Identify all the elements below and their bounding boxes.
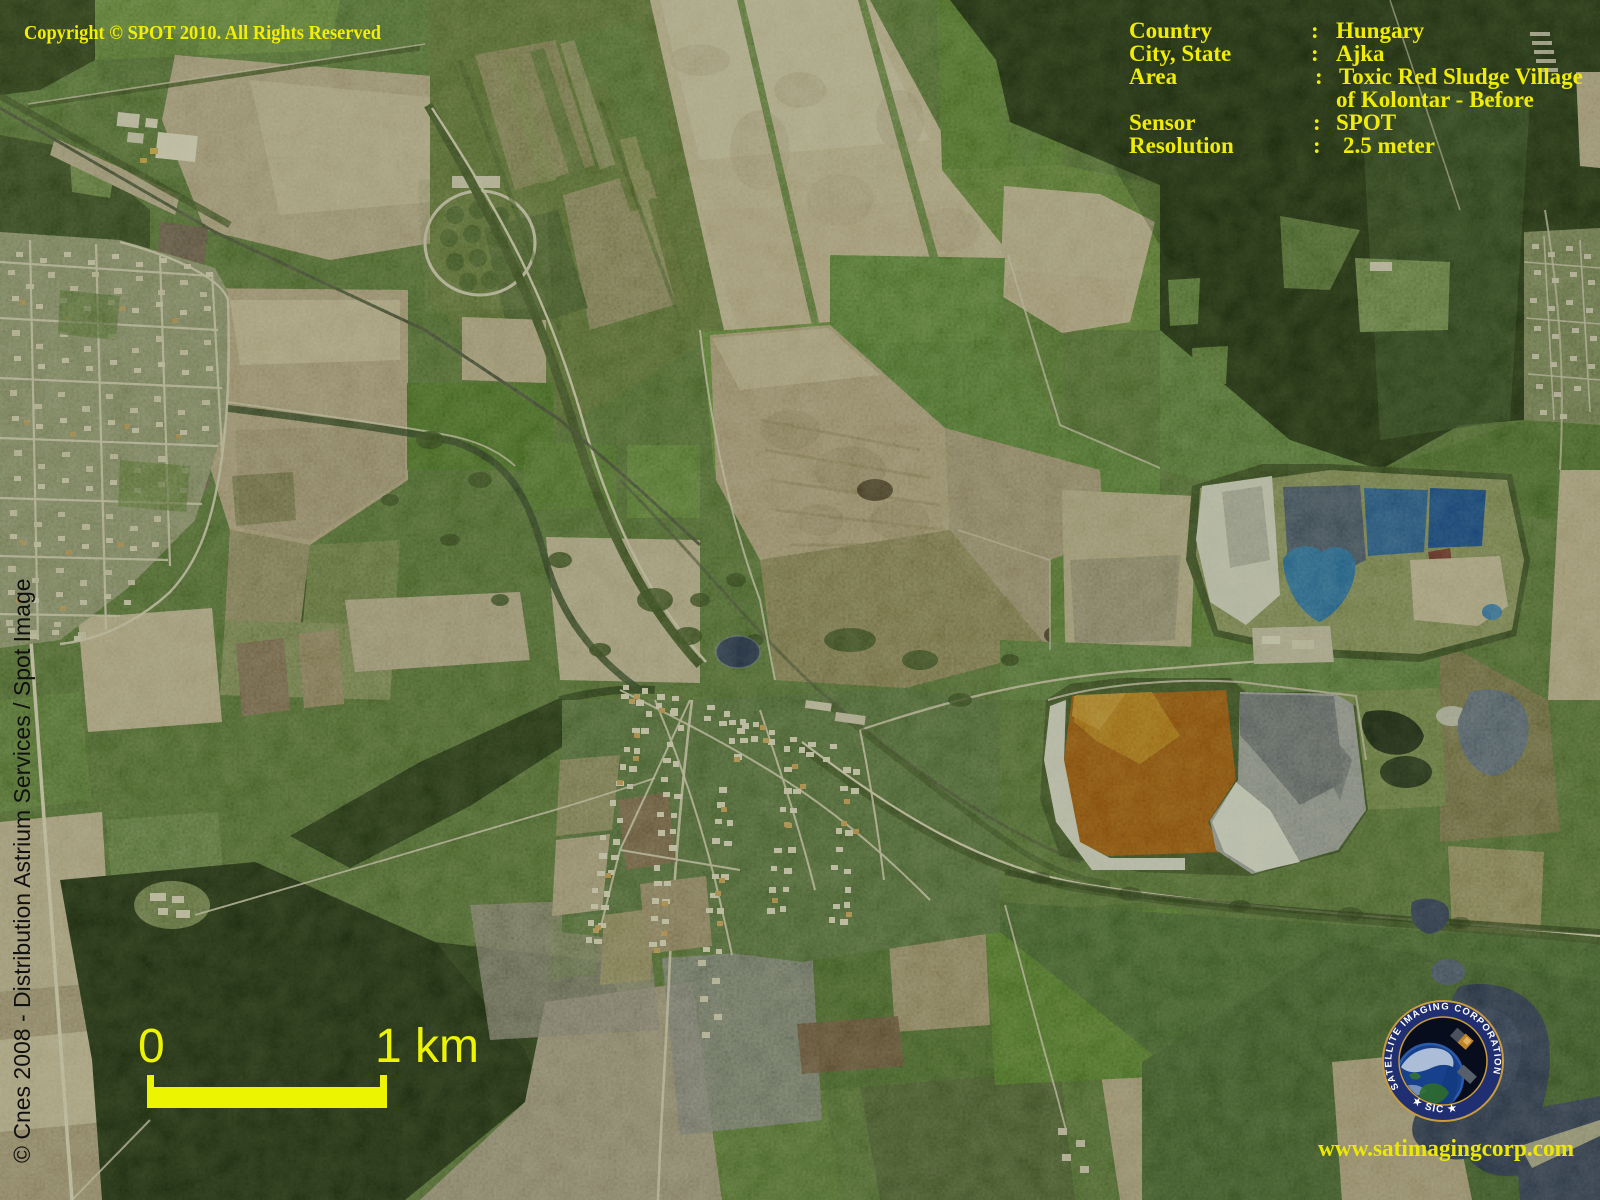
svg-text::: : (1311, 18, 1319, 43)
svg-text:Resolution: Resolution (1129, 133, 1234, 158)
svg-text::: : (1315, 64, 1323, 89)
svg-text::: : (1313, 133, 1321, 158)
svg-text::: : (1311, 41, 1319, 66)
svg-text:City, State: City, State (1129, 41, 1231, 66)
svg-text:Toxic Red Sludge Village: Toxic Red Sludge Village (1339, 64, 1583, 89)
svg-text:Country: Country (1129, 18, 1213, 43)
svg-text:1 km: 1 km (375, 1020, 479, 1073)
svg-text:Ajka: Ajka (1336, 41, 1385, 66)
svg-text::: : (1313, 110, 1321, 135)
svg-text:© Cnes 2008 - Distribution Ast: © Cnes 2008 - Distribution Astrium Servi… (9, 578, 35, 1163)
svg-text:2.5 meter: 2.5 meter (1343, 133, 1435, 158)
svg-text:SPOT: SPOT (1336, 110, 1396, 135)
svg-text:Sensor: Sensor (1129, 110, 1195, 135)
svg-text:Copyright © SPOT 2010. All Rig: Copyright © SPOT 2010. All Rights Reserv… (24, 22, 381, 44)
svg-text:0: 0 (138, 1020, 165, 1073)
svg-text:Hungary: Hungary (1336, 18, 1425, 43)
svg-text:Area: Area (1129, 64, 1178, 89)
svg-text:www.satimagingcorp.com: www.satimagingcorp.com (1318, 1136, 1574, 1162)
svg-text:of Kolontar - Before: of Kolontar - Before (1336, 87, 1534, 112)
